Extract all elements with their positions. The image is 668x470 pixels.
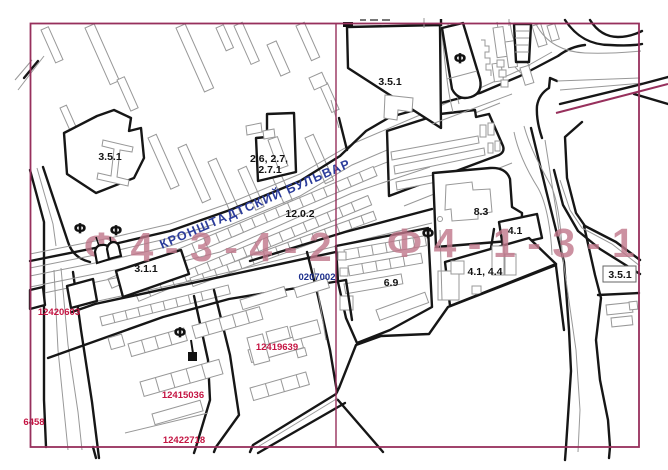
svg-text:Ф: Ф — [110, 223, 122, 238]
svg-text:4.1, 4.4: 4.1, 4.4 — [467, 266, 502, 278]
svg-text:Ф: Ф — [422, 226, 434, 241]
svg-text:12419639: 12419639 — [256, 342, 298, 353]
svg-text:0207002: 0207002 — [299, 272, 336, 283]
svg-text:12420603: 12420603 — [38, 307, 80, 318]
svg-text:Ф: Ф — [174, 325, 186, 340]
svg-text:3.5.1: 3.5.1 — [608, 269, 632, 281]
svg-text:Ф: Ф — [74, 221, 86, 236]
svg-text:6458: 6458 — [23, 417, 44, 428]
svg-text:3.5.1: 3.5.1 — [98, 151, 122, 163]
svg-text:Ф: Ф — [454, 51, 466, 66]
svg-text:8.3: 8.3 — [474, 206, 489, 218]
svg-text:6.9: 6.9 — [384, 277, 399, 289]
svg-text:12.0.2: 12.0.2 — [285, 208, 314, 220]
svg-text:3.5.1: 3.5.1 — [378, 76, 402, 88]
svg-text:2.7.1: 2.7.1 — [258, 164, 282, 176]
svg-text:Ф4-3-4-2: Ф4-3-4-2 — [84, 224, 343, 270]
svg-text:12422718: 12422718 — [163, 435, 205, 446]
svg-text:12415036: 12415036 — [162, 390, 204, 401]
